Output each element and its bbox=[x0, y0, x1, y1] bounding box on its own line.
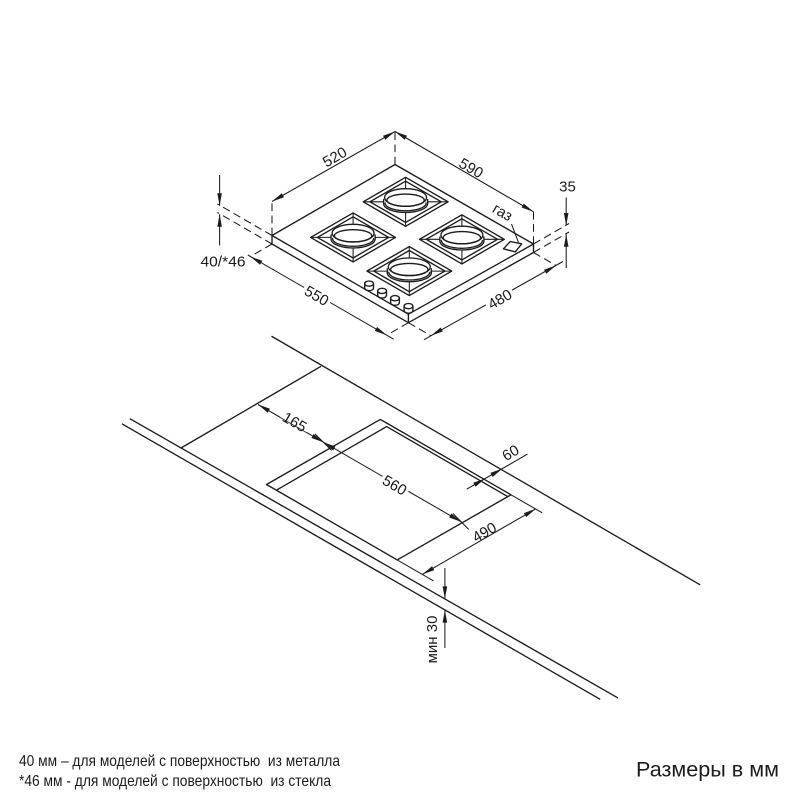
svg-text:40/*46: 40/*46 bbox=[201, 254, 246, 271]
svg-text:*46 мм - для моделей с поверхн: *46 мм - для моделей с поверхностью из с… bbox=[19, 773, 331, 790]
svg-text:520: 520 bbox=[320, 144, 350, 171]
svg-text:40 мм – для моделей с поверхно: 40 мм – для моделей с поверхностью из ме… bbox=[19, 753, 340, 770]
svg-text:35: 35 bbox=[559, 179, 576, 196]
svg-text:Размеры в мм: Размеры в мм bbox=[636, 759, 779, 782]
svg-text:60: 60 bbox=[499, 442, 522, 465]
svg-text:мин 30: мин 30 bbox=[424, 616, 441, 664]
svg-text:590: 590 bbox=[456, 155, 486, 182]
